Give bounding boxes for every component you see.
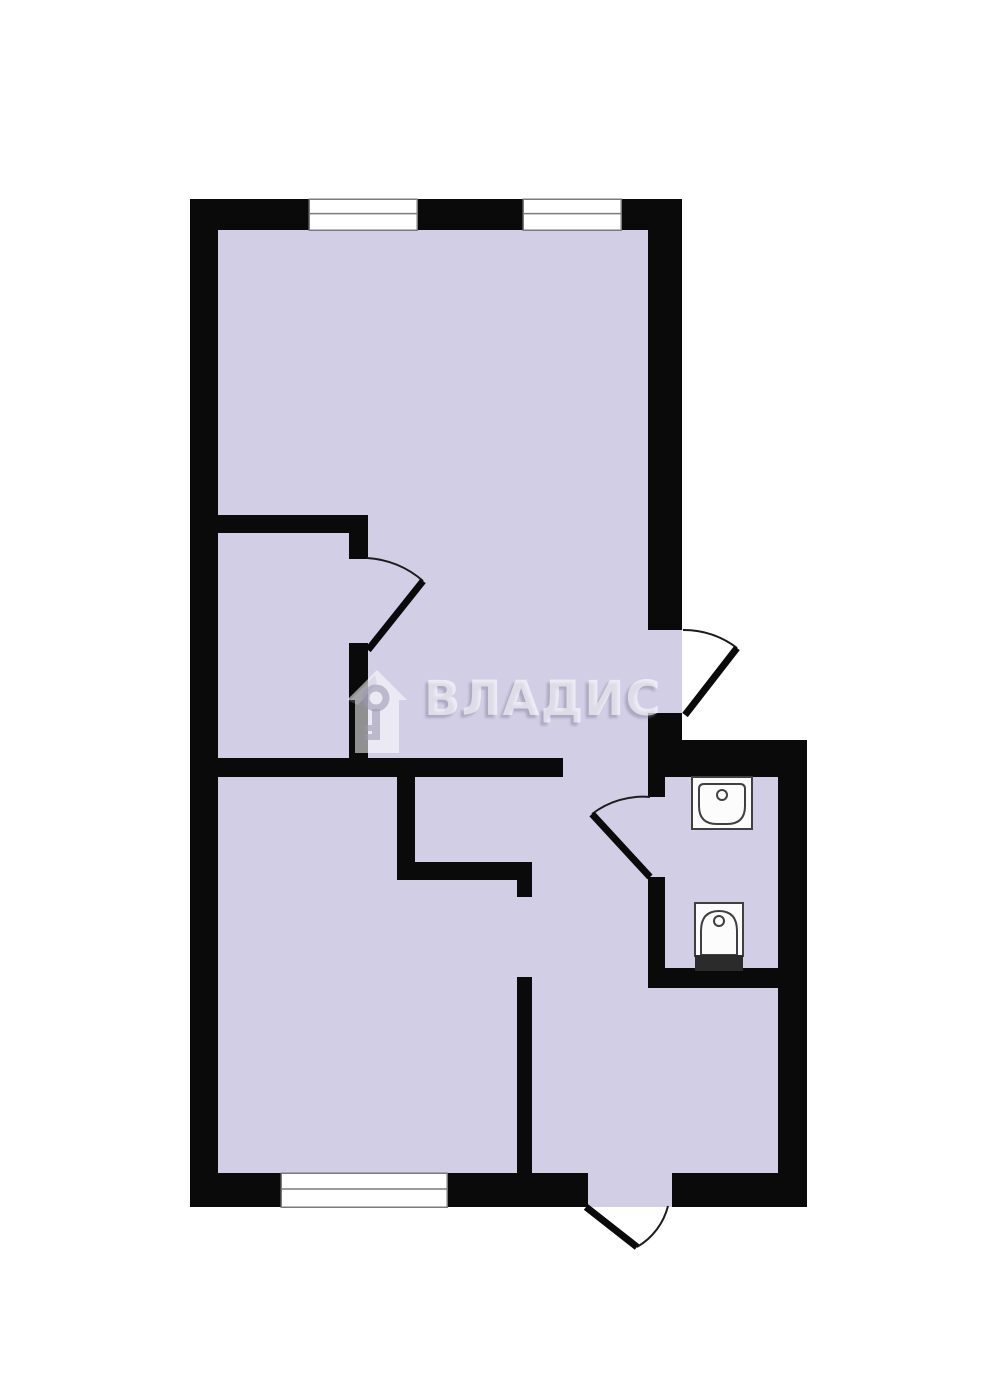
- wall: [190, 758, 563, 777]
- door-leaf: [586, 1207, 637, 1247]
- wall: [349, 533, 368, 559]
- room-floor: [204, 758, 662, 1190]
- window: [523, 199, 621, 230]
- door-leaf: [685, 648, 737, 715]
- toilet-tank: [695, 955, 743, 971]
- window: [281, 1173, 447, 1207]
- window: [309, 199, 417, 230]
- door-swing-arc: [637, 1206, 668, 1247]
- room-floor: [648, 630, 682, 715]
- wall: [190, 515, 368, 533]
- wall: [517, 880, 532, 897]
- wall: [517, 977, 532, 1177]
- wall: [648, 199, 682, 630]
- wall: [349, 643, 368, 758]
- room-floor: [204, 213, 662, 768]
- floorplan-canvas: ВЛАДИС: [0, 0, 984, 1400]
- sink-drain: [717, 790, 727, 800]
- toilet-flush-button: [714, 916, 724, 926]
- door-swing-arc: [683, 630, 737, 648]
- wall: [648, 713, 665, 797]
- wall: [190, 199, 218, 1207]
- wall: [778, 740, 807, 1207]
- room-floor: [588, 1173, 672, 1207]
- wall: [397, 862, 532, 880]
- floorplan-drawing: [0, 0, 984, 1400]
